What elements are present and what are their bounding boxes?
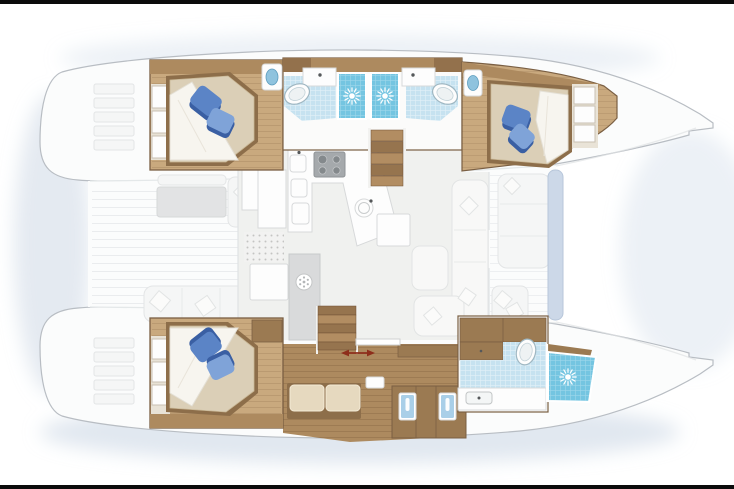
side-cabinet: [398, 345, 458, 357]
glass-front-locker: [399, 393, 416, 420]
faucet: [478, 397, 481, 400]
chart-table: [250, 264, 288, 300]
owner-cabin: [150, 318, 283, 428]
stove: [314, 152, 345, 177]
lower-transom-swim-steps: [94, 338, 134, 404]
washbasin-counter: [303, 68, 336, 86]
owner-passage: [283, 344, 466, 442]
cabin-washbasin: [262, 64, 282, 90]
bath-cabinet: [434, 58, 462, 72]
faucet: [297, 151, 300, 154]
upper-transom-swim-steps: [94, 84, 134, 150]
upper-companionway-stairs: [368, 128, 406, 188]
vanity-unit: [252, 320, 282, 342]
washbasin-counter: [402, 68, 435, 86]
sliding-door: [356, 339, 400, 345]
faucet: [369, 199, 372, 202]
aft-cockpit: [92, 175, 258, 322]
upper-aft-cabin: [150, 60, 283, 170]
faucet: [411, 73, 414, 76]
bottom-frame-bar: [0, 485, 734, 489]
dinette-table: [377, 214, 410, 246]
forward-cockpit: [490, 170, 563, 322]
aft-cockpit-table: [157, 187, 226, 217]
aft-cockpit-backrest: [158, 175, 226, 185]
top-frame-bar: [0, 0, 734, 4]
galley-sink: [291, 179, 307, 197]
floor-plan-svg: [0, 0, 734, 489]
wardrobe-locker: [574, 87, 595, 104]
galley-sink: [290, 155, 306, 172]
dishwasher: [292, 203, 309, 224]
refrigerator: [289, 254, 320, 340]
storage-unit: [258, 170, 286, 228]
wardrobe-locker: [574, 106, 595, 123]
crossbeam-blue-pad: [548, 170, 563, 320]
shelf-band: [150, 414, 283, 428]
side-table: [366, 377, 384, 388]
faucet: [318, 73, 321, 76]
snowflake-fridge-icon: [296, 274, 312, 290]
storage-cabinets: [392, 386, 466, 438]
salon: [238, 149, 489, 340]
glass-front-locker: [439, 393, 456, 420]
sofa-bench: [287, 383, 361, 419]
cabin-washbasin: [464, 70, 482, 96]
wardrobe-locker: [574, 125, 595, 142]
settee-seat: [412, 246, 448, 290]
storage-unit: [242, 166, 258, 210]
